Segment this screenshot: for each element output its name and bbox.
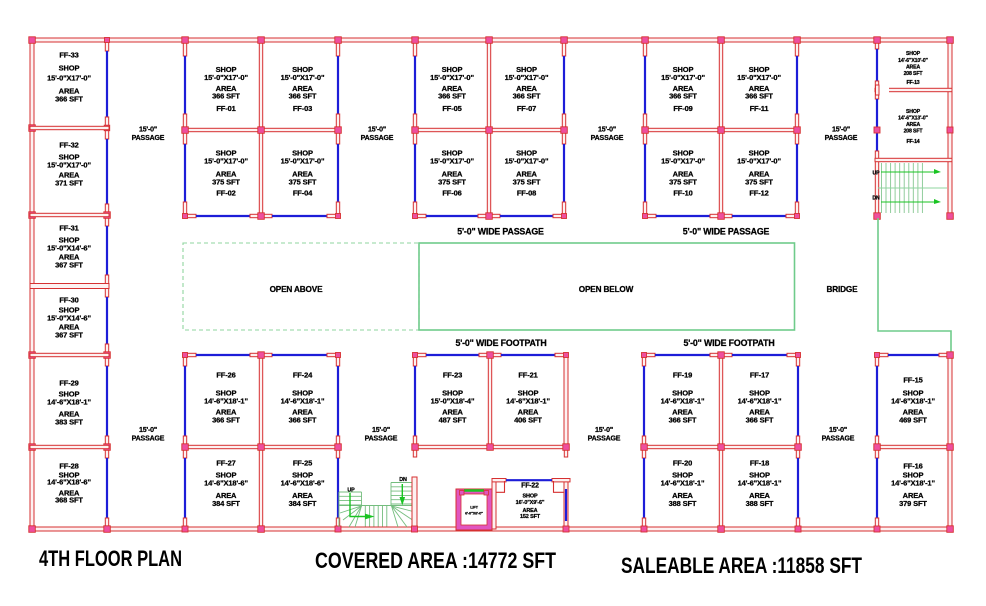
svg-text:FF-10: FF-10 (673, 189, 692, 198)
svg-text:DN: DN (399, 477, 407, 483)
svg-text:AREA: AREA (906, 64, 921, 70)
svg-text:366 SFT: 366 SFT (746, 416, 774, 425)
svg-text:PASSAGE: PASSAGE (365, 436, 398, 443)
svg-text:FF-27: FF-27 (216, 459, 235, 468)
svg-text:5'-0" WIDE FOOTPATH: 5'-0" WIDE FOOTPATH (455, 338, 546, 348)
svg-text:OPEN ABOVE: OPEN ABOVE (270, 285, 323, 294)
svg-text:14'-6"X18'-6": 14'-6"X18'-6" (47, 478, 91, 487)
svg-text:14'-6"X10'-0": 14'-6"X10'-0" (898, 58, 928, 64)
svg-text:FF-25: FF-25 (293, 459, 312, 468)
svg-text:15'-0"X17'-0": 15'-0"X17'-0" (204, 73, 248, 82)
svg-text:UP: UP (347, 487, 355, 493)
svg-text:SALEABLE AREA :11858 SFT: SALEABLE AREA :11858 SFT (621, 553, 862, 578)
svg-text:FF-30: FF-30 (59, 296, 78, 305)
svg-text:14'-6"X18'-1": 14'-6"X18'-1" (661, 479, 705, 488)
svg-text:FF-32: FF-32 (59, 141, 78, 150)
svg-text:15'-0": 15'-0" (139, 427, 157, 434)
svg-text:366 SFT: 366 SFT (669, 92, 697, 101)
svg-text:PASSAGE: PASSAGE (132, 135, 165, 142)
svg-text:366 SFT: 366 SFT (212, 416, 240, 425)
svg-text:FF-15: FF-15 (903, 376, 922, 385)
svg-text:383 SFT: 383 SFT (55, 418, 83, 427)
svg-text:406 SFT: 406 SFT (514, 416, 542, 425)
svg-text:15'-0": 15'-0" (829, 427, 847, 434)
svg-text:PASSAGE: PASSAGE (132, 436, 165, 443)
svg-text:LIFT: LIFT (470, 505, 478, 510)
svg-text:FF-19: FF-19 (673, 371, 692, 380)
svg-text:366 SFT: 366 SFT (289, 416, 317, 425)
svg-text:15'-0": 15'-0" (595, 427, 613, 434)
svg-text:FF-02: FF-02 (216, 189, 235, 198)
svg-text:367 SFT: 367 SFT (55, 261, 83, 270)
svg-text:15'-0"X17'-0": 15'-0"X17'-0" (505, 157, 549, 166)
svg-text:384 SFT: 384 SFT (212, 499, 240, 508)
svg-text:14'-6"X18'-1": 14'-6"X18'-1" (661, 397, 705, 406)
svg-text:388 SFT: 388 SFT (669, 499, 697, 508)
svg-text:366 SFT: 366 SFT (55, 95, 83, 104)
svg-text:487 SFT: 487 SFT (439, 416, 467, 425)
svg-text:FF-11: FF-11 (750, 104, 769, 113)
svg-text:SHOP: SHOP (59, 64, 80, 73)
svg-text:366 SFT: 366 SFT (438, 92, 466, 101)
svg-text:FF-21: FF-21 (518, 371, 537, 380)
svg-text:379 SFT: 379 SFT (899, 499, 927, 508)
svg-text:PASSAGE: PASSAGE (588, 436, 621, 443)
svg-text:15'-0": 15'-0" (598, 126, 616, 133)
svg-text:15'-0"X17'-0": 15'-0"X17'-0" (47, 161, 91, 170)
svg-text:BRIDGE: BRIDGE (827, 285, 859, 294)
svg-text:15'-0": 15'-0" (368, 126, 386, 133)
svg-text:14'-6"X18'-1": 14'-6"X18'-1" (281, 397, 325, 406)
svg-text:15'-0"X17'-0": 15'-0"X17'-0" (661, 157, 705, 166)
svg-text:15'-0"X17'-0": 15'-0"X17'-0" (661, 73, 705, 82)
svg-text:375 SFT: 375 SFT (669, 178, 697, 187)
svg-text:FF-20: FF-20 (673, 459, 692, 468)
svg-text:208 SFT: 208 SFT (904, 71, 924, 77)
svg-text:14'-6"X18'-1": 14'-6"X18'-1" (891, 397, 935, 406)
svg-text:366 SFT: 366 SFT (745, 92, 773, 101)
svg-text:375 SFT: 375 SFT (212, 178, 240, 187)
svg-text:388 SFT: 388 SFT (746, 499, 774, 508)
svg-text:15'-0"X17'-0": 15'-0"X17'-0" (204, 157, 248, 166)
svg-text:FF-08: FF-08 (517, 189, 536, 198)
svg-text:384 SFT: 384 SFT (289, 499, 317, 508)
svg-text:FF-29: FF-29 (59, 379, 78, 388)
svg-text:14'-6"X18'-6": 14'-6"X18'-6" (204, 479, 248, 488)
svg-text:15'-0"X17'-0": 15'-0"X17'-0" (47, 74, 91, 83)
svg-text:4TH FLOOR PLAN: 4TH FLOOR PLAN (39, 546, 182, 571)
svg-text:15'-0"X18'-4": 15'-0"X18'-4" (431, 397, 475, 406)
svg-text:469 SFT: 469 SFT (899, 416, 927, 425)
svg-text:AREA: AREA (906, 122, 921, 128)
svg-text:371 SFT: 371 SFT (55, 179, 83, 188)
svg-text:14'-6"X18'-1": 14'-6"X18'-1" (738, 479, 782, 488)
svg-text:FF-14: FF-14 (906, 139, 919, 145)
svg-text:366 SFT: 366 SFT (289, 92, 317, 101)
svg-text:15'-0"X14'-6": 15'-0"X14'-6" (47, 314, 91, 323)
svg-text:FF-18: FF-18 (750, 459, 769, 468)
svg-text:SHOP: SHOP (523, 493, 538, 499)
svg-text:OPEN BELOW: OPEN BELOW (579, 285, 634, 294)
svg-text:15'-0"X17'-0": 15'-0"X17'-0" (281, 73, 325, 82)
svg-text:FF-28: FF-28 (59, 462, 78, 471)
svg-text:14'-6"X18'-1": 14'-6"X18'-1" (204, 397, 248, 406)
svg-text:367 SFT: 367 SFT (55, 331, 83, 340)
svg-text:15'-0"X17'-0": 15'-0"X17'-0" (430, 157, 474, 166)
svg-text:FF-24: FF-24 (293, 371, 313, 380)
svg-text:152 SFT: 152 SFT (520, 514, 541, 520)
svg-text:14'-6"X18'-6": 14'-6"X18'-6" (281, 479, 325, 488)
svg-text:FF-26: FF-26 (216, 371, 235, 380)
svg-text:FF-17: FF-17 (750, 371, 769, 380)
svg-text:375 SFT: 375 SFT (438, 178, 466, 187)
svg-text:375 SFT: 375 SFT (513, 178, 541, 187)
svg-text:FF-23: FF-23 (443, 371, 462, 380)
svg-text:DN: DN (872, 196, 880, 202)
svg-text:14'-6"X18'-1": 14'-6"X18'-1" (738, 397, 782, 406)
svg-text:PASSAGE: PASSAGE (591, 135, 624, 142)
svg-text:366 SFT: 366 SFT (669, 416, 697, 425)
svg-text:15'-0"X17'-0": 15'-0"X17'-0" (430, 73, 474, 82)
svg-text:15'-0": 15'-0" (372, 427, 390, 434)
svg-text:16'-0"X9'-6": 16'-0"X9'-6" (516, 500, 545, 506)
svg-text:PASSAGE: PASSAGE (825, 135, 858, 142)
svg-text:15'-0"X14'-6": 15'-0"X14'-6" (47, 244, 91, 253)
svg-text:FF-06: FF-06 (442, 189, 461, 198)
svg-text:6'-0"X6'-0": 6'-0"X6'-0" (465, 511, 483, 516)
svg-text:14'-6"X18'-1": 14'-6"X18'-1" (891, 479, 935, 488)
svg-text:14'-6"X18'-1": 14'-6"X18'-1" (506, 397, 550, 406)
svg-text:FF-09: FF-09 (673, 104, 692, 113)
svg-text:FF-01: FF-01 (216, 104, 235, 113)
svg-text:15'-0"X17'-0": 15'-0"X17'-0" (505, 73, 549, 82)
svg-text:FF-31: FF-31 (59, 224, 78, 233)
svg-text:FF-03: FF-03 (293, 104, 312, 113)
svg-text:375 SFT: 375 SFT (745, 178, 773, 187)
svg-text:5'-0" WIDE FOOTPATH: 5'-0" WIDE FOOTPATH (683, 338, 774, 348)
svg-text:5'-0" WIDE PASSAGE: 5'-0" WIDE PASSAGE (457, 226, 544, 236)
svg-text:15'-0": 15'-0" (832, 126, 850, 133)
svg-text:375 SFT: 375 SFT (289, 178, 317, 187)
svg-text:FF-04: FF-04 (293, 189, 313, 198)
svg-text:SHOP: SHOP (906, 51, 921, 57)
svg-text:15'-0"X17'-0": 15'-0"X17'-0" (281, 157, 325, 166)
svg-text:FF-33: FF-33 (59, 51, 78, 60)
svg-text:366 SFT: 366 SFT (513, 92, 541, 101)
svg-text:15'-0": 15'-0" (139, 126, 157, 133)
svg-text:368 SFT: 368 SFT (55, 496, 83, 505)
svg-text:5'-0" WIDE PASSAGE: 5'-0" WIDE PASSAGE (683, 226, 770, 236)
svg-text:PASSAGE: PASSAGE (822, 436, 855, 443)
svg-text:SHOP: SHOP (906, 109, 921, 115)
svg-text:15'-0"X17'-0": 15'-0"X17'-0" (737, 73, 781, 82)
svg-text:14'-6"X18'-1": 14'-6"X18'-1" (47, 398, 91, 407)
svg-text:208 SFT: 208 SFT (904, 128, 924, 134)
svg-text:PASSAGE: PASSAGE (361, 135, 394, 142)
svg-text:15'-0"X17'-0": 15'-0"X17'-0" (737, 157, 781, 166)
svg-text:FF-22: FF-22 (521, 482, 539, 489)
svg-text:FF-05: FF-05 (442, 104, 461, 113)
svg-text:FF-16: FF-16 (903, 462, 922, 471)
svg-text:COVERED AREA :14772 SFT: COVERED AREA :14772 SFT (315, 548, 556, 573)
svg-text:FF-07: FF-07 (517, 104, 536, 113)
svg-text:366 SFT: 366 SFT (212, 92, 240, 101)
svg-text:14'-6"X13'-0": 14'-6"X13'-0" (898, 115, 928, 121)
svg-text:UP: UP (873, 171, 881, 177)
svg-text:FF-12: FF-12 (749, 189, 768, 198)
svg-text:FF-13: FF-13 (906, 80, 919, 86)
